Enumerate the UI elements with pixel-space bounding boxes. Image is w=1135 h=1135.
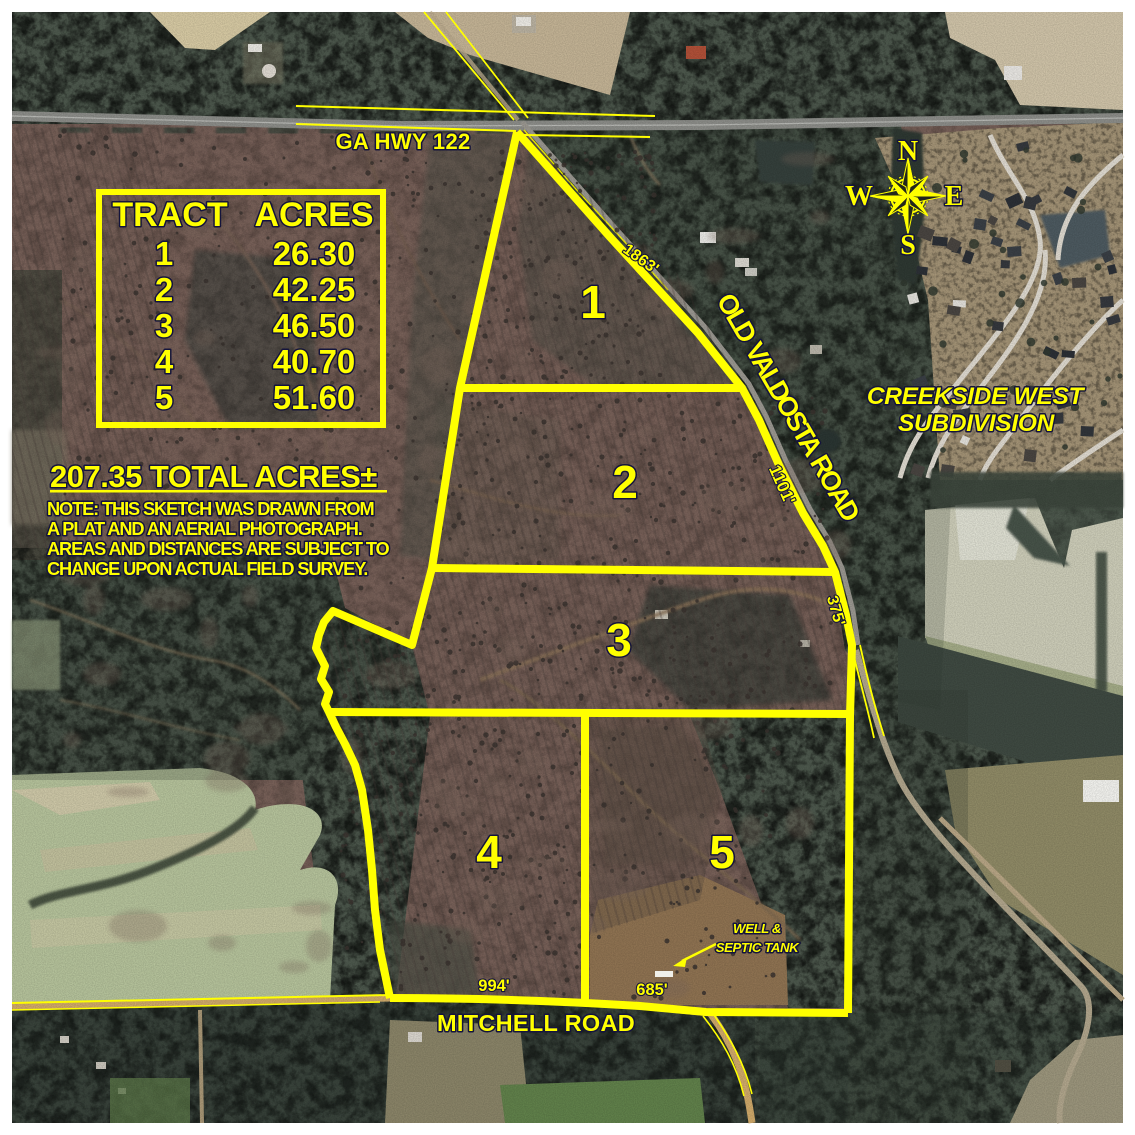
svg-text:AREAS AND DISTANCES ARE SUBJEC: AREAS AND DISTANCES ARE SUBJECT TO — [47, 539, 389, 559]
svg-text:46.50: 46.50 — [273, 307, 356, 344]
svg-text:A PLAT AND AN AERIAL PHOTOGRAP: A PLAT AND AN AERIAL PHOTOGRAPH. — [47, 519, 362, 539]
svg-text:26.30: 26.30 — [273, 235, 356, 272]
svg-text:42.25: 42.25 — [273, 271, 356, 308]
svg-text:3: 3 — [606, 614, 632, 666]
svg-text:NOTE: THIS SKETCH WAS DRAWN FR: NOTE: THIS SKETCH WAS DRAWN FROM — [47, 499, 374, 519]
svg-text:51.60: 51.60 — [273, 379, 356, 416]
svg-text:SEPTIC TANK: SEPTIC TANK — [716, 940, 800, 955]
svg-text:994': 994' — [478, 977, 510, 995]
svg-text:SUBDIVISION: SUBDIVISION — [898, 410, 1056, 437]
svg-text:685': 685' — [636, 981, 668, 999]
svg-text:W: W — [845, 181, 873, 212]
svg-text:MITCHELL ROAD: MITCHELL ROAD — [437, 1010, 635, 1036]
svg-text:CREEKSIDE WEST: CREEKSIDE WEST — [867, 383, 1086, 410]
svg-text:207.35 TOTAL ACRES±: 207.35 TOTAL ACRES± — [50, 459, 377, 494]
svg-text:3: 3 — [155, 307, 173, 344]
svg-text:GA HWY 122: GA HWY 122 — [335, 129, 470, 154]
svg-text:4: 4 — [155, 343, 174, 380]
svg-text:S: S — [900, 230, 916, 261]
svg-text:WELL &: WELL & — [733, 921, 781, 936]
svg-text:5: 5 — [709, 826, 735, 878]
svg-text:4: 4 — [476, 826, 502, 878]
svg-text:2: 2 — [612, 456, 638, 508]
svg-text:N: N — [898, 136, 918, 167]
svg-text:2: 2 — [155, 271, 173, 308]
svg-text:TRACT: TRACT — [112, 196, 227, 234]
svg-text:1: 1 — [155, 235, 173, 272]
svg-text:ACRES: ACRES — [254, 196, 373, 234]
svg-text:E: E — [945, 181, 964, 212]
svg-text:40.70: 40.70 — [273, 343, 356, 380]
svg-text:1: 1 — [580, 276, 606, 328]
svg-text:CHANGE UPON ACTUAL FIELD SURVE: CHANGE UPON ACTUAL FIELD SURVEY. — [47, 559, 367, 579]
svg-text:5: 5 — [155, 379, 173, 416]
